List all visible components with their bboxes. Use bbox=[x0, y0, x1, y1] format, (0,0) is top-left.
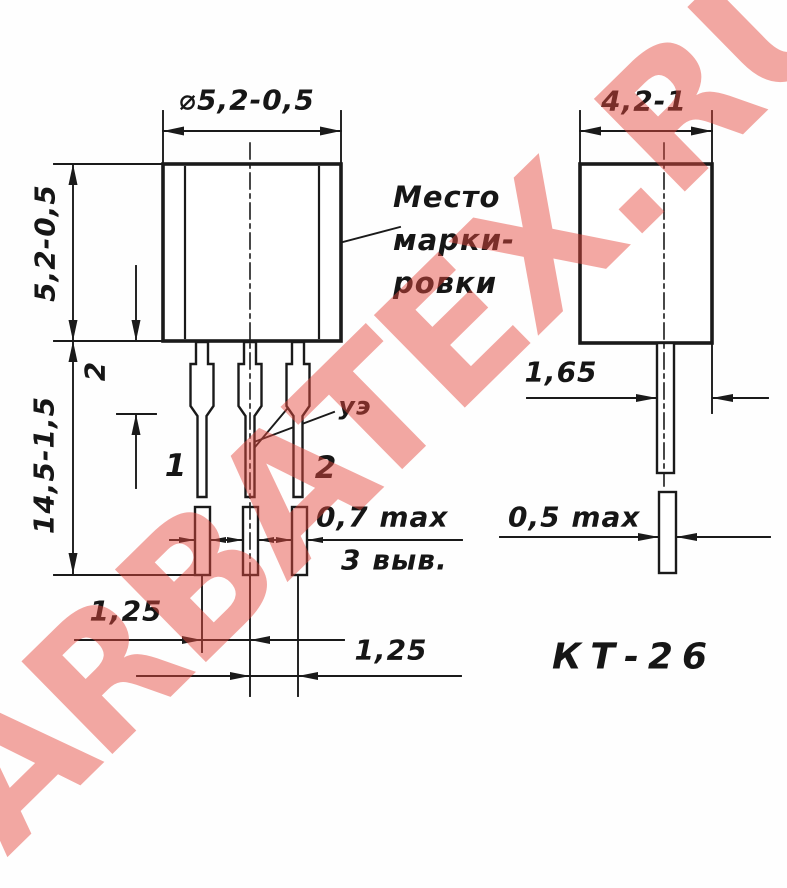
package-drawing: ⌀5,2-0,5 5,2-0,5 14,5-1,5 2 1,25 1,25 0,… bbox=[0, 0, 787, 787]
lead-pitch-right-dimension: 1,25 bbox=[354, 634, 427, 667]
total-length-dimension: 14,5-1,5 bbox=[28, 396, 61, 534]
side-lead bbox=[657, 343, 674, 473]
shoulder-length-dimension: 2 bbox=[79, 361, 112, 381]
package-name: КТ-26 bbox=[552, 637, 716, 678]
lead-width-dimension: 0,5 max bbox=[508, 501, 640, 534]
diameter-dimension: ⌀5,2-0,5 bbox=[179, 84, 315, 117]
body-height-dimension: 5,2-0,5 bbox=[29, 184, 62, 302]
side-lead-cross-section bbox=[659, 492, 676, 573]
front-body bbox=[163, 164, 341, 341]
